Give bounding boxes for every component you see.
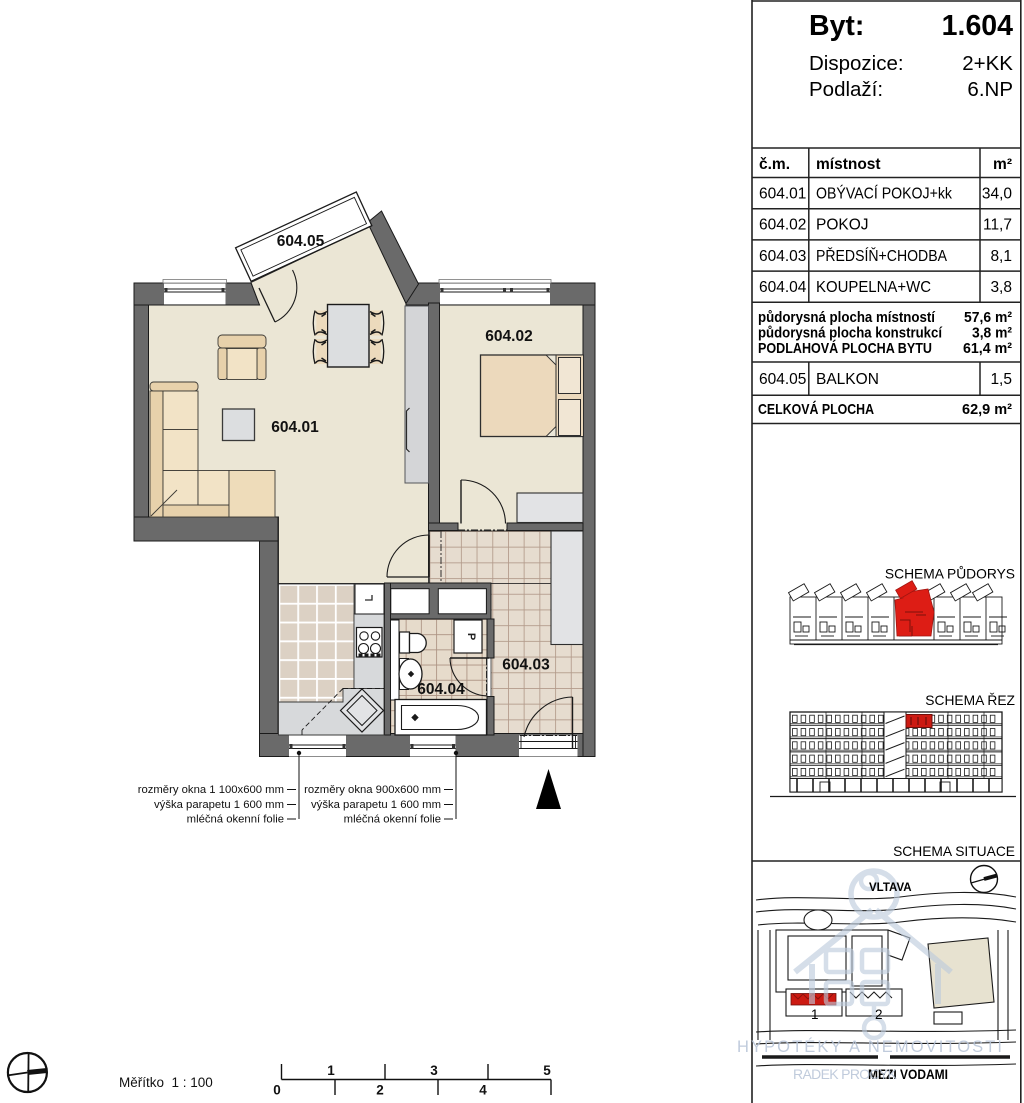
svg-text:3: 3 [430,1063,438,1078]
svg-text:34,0: 34,0 [982,186,1013,203]
svg-text:61,4 m²: 61,4 m² [963,340,1012,357]
svg-text:2: 2 [875,1007,883,1022]
svg-text:RADEK PROCYK: RADEK PROCYK [793,1066,898,1082]
svg-text:výška parapetu 1 600 mm: výška parapetu 1 600 mm [311,799,441,811]
svg-text:Dispozice:: Dispozice: [809,52,904,75]
svg-text:č.m.: č.m. [759,156,790,173]
svg-text:1,5: 1,5 [990,371,1012,388]
svg-text:výška parapetu 1 600 mm: výška parapetu 1 600 mm [154,799,284,811]
svg-text:2+KK: 2+KK [962,52,1013,75]
svg-text:604.04: 604.04 [759,279,807,296]
svg-text:VLTAVA: VLTAVA [869,882,912,894]
svg-text:5: 5 [543,1063,551,1078]
svg-text:rozměry okna 900x600 mm: rozměry okna 900x600 mm [304,784,441,796]
svg-text:CELKOVÁ PLOCHA: CELKOVÁ PLOCHA [758,401,874,418]
svg-text:8,1: 8,1 [990,248,1012,265]
svg-text:1: 1 [811,1007,819,1022]
svg-text:SCHEMA SITUACE: SCHEMA SITUACE [893,844,1015,859]
svg-text:604.05: 604.05 [759,371,806,388]
svg-text:Podlaží:: Podlaží: [809,78,883,101]
svg-text:PODLAHOVÁ PLOCHA BYTU: PODLAHOVÁ PLOCHA BYTU [758,340,932,357]
svg-text:rozměry okna 1 100x600 mm: rozměry okna 1 100x600 mm [138,784,284,796]
svg-text:OBÝVACÍ POKOJ+kk: OBÝVACÍ POKOJ+kk [816,186,952,203]
svg-text:PŘEDSÍŇ+CHODBA: PŘEDSÍŇ+CHODBA [816,248,948,265]
svg-text:KOUPELNA+WC: KOUPELNA+WC [816,279,931,296]
svg-text:6.NP: 6.NP [967,78,1013,101]
svg-text:mléčná okenní folie: mléčná okenní folie [187,814,284,826]
svg-text:604.04: 604.04 [417,681,465,698]
svg-text:1: 1 [327,1063,335,1078]
svg-text:BALKON: BALKON [816,371,879,388]
svg-text:mléčná okenní folie: mléčná okenní folie [344,814,441,826]
svg-text:půdorysná plocha konstrukcí: půdorysná plocha konstrukcí [758,325,943,342]
svg-text:62,9 m²: 62,9 m² [962,401,1012,418]
svg-text:HYPOTÉKY A NEMOVITOSTI: HYPOTÉKY A NEMOVITOSTI [737,1037,1002,1056]
svg-text:3,8 m²: 3,8 m² [972,325,1012,342]
svg-text:3,8: 3,8 [990,279,1012,296]
svg-text:POKOJ: POKOJ [816,217,869,234]
svg-text:604.01: 604.01 [759,186,806,203]
svg-text:SCHEMA PŮDORYS: SCHEMA PŮDORYS [885,565,1015,582]
svg-text:604.03: 604.03 [759,248,806,265]
svg-text:1.604: 1.604 [942,10,1013,42]
svg-text:57,6 m²: 57,6 m² [964,309,1012,326]
svg-text:P: P [465,633,477,640]
svg-text:604.03: 604.03 [502,657,550,674]
svg-text:0: 0 [273,1083,281,1098]
svg-text:604.05: 604.05 [277,233,325,250]
svg-text:půdorysná plocha místností: půdorysná plocha místností [758,309,936,326]
svg-text:SCHEMA ŘEZ: SCHEMA ŘEZ [925,692,1015,708]
svg-text:604.02: 604.02 [759,217,806,234]
svg-text:604.01: 604.01 [271,419,319,436]
svg-text:Měřítko 1 : 100: Měřítko 1 : 100 [119,1075,213,1090]
svg-text:4: 4 [479,1083,487,1098]
svg-text:m²: m² [993,156,1012,173]
svg-text:místnost: místnost [816,156,881,173]
svg-text:Byt:: Byt: [809,10,864,42]
svg-text:604.02: 604.02 [485,328,532,345]
svg-text:11,7: 11,7 [983,217,1012,234]
svg-text:2: 2 [376,1083,384,1098]
